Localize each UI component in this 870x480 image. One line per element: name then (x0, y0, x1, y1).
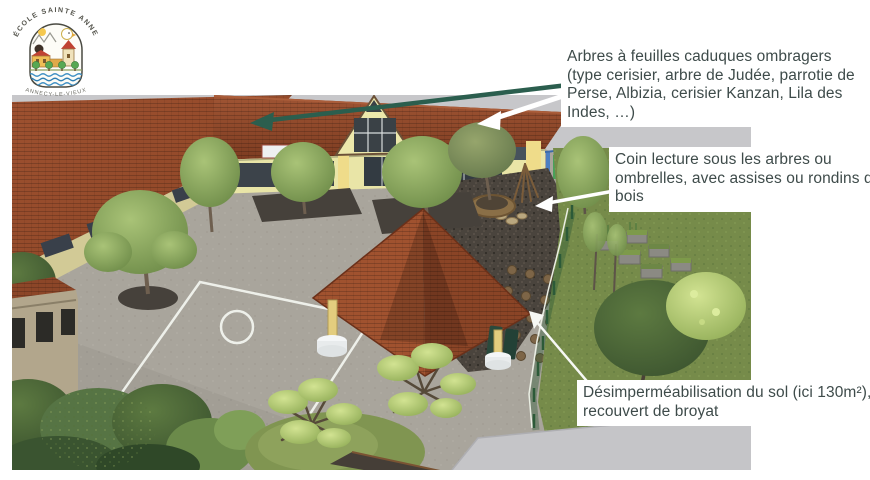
logo-arc-bottom-text: ANNECY-LE-VIEUX (25, 87, 88, 98)
annotation-reading-text: Coin lecture sous les arbres ou ombrelle… (615, 151, 870, 205)
annotation-reading: Coin lecture sous les arbres ou ombrelle… (609, 147, 870, 212)
page-canvas: ÉCOLE SAINTE ANNE ANNECY-LE-VIEUX Arbres… (0, 0, 870, 480)
school-logo: ÉCOLE SAINTE ANNE ANNECY-LE-VIEUX (6, 2, 110, 110)
annotation-trees: Arbres à feuilles caduques ombragers (ty… (561, 44, 870, 127)
annotation-trees-text: Arbres à feuilles caduques ombragers (ty… (567, 48, 855, 121)
annotation-soil-text: Désimperméabilisation du sol (ici 130m²)… (583, 384, 870, 420)
annotation-soil: Désimperméabilisation du sol (ici 130m²)… (577, 380, 870, 426)
